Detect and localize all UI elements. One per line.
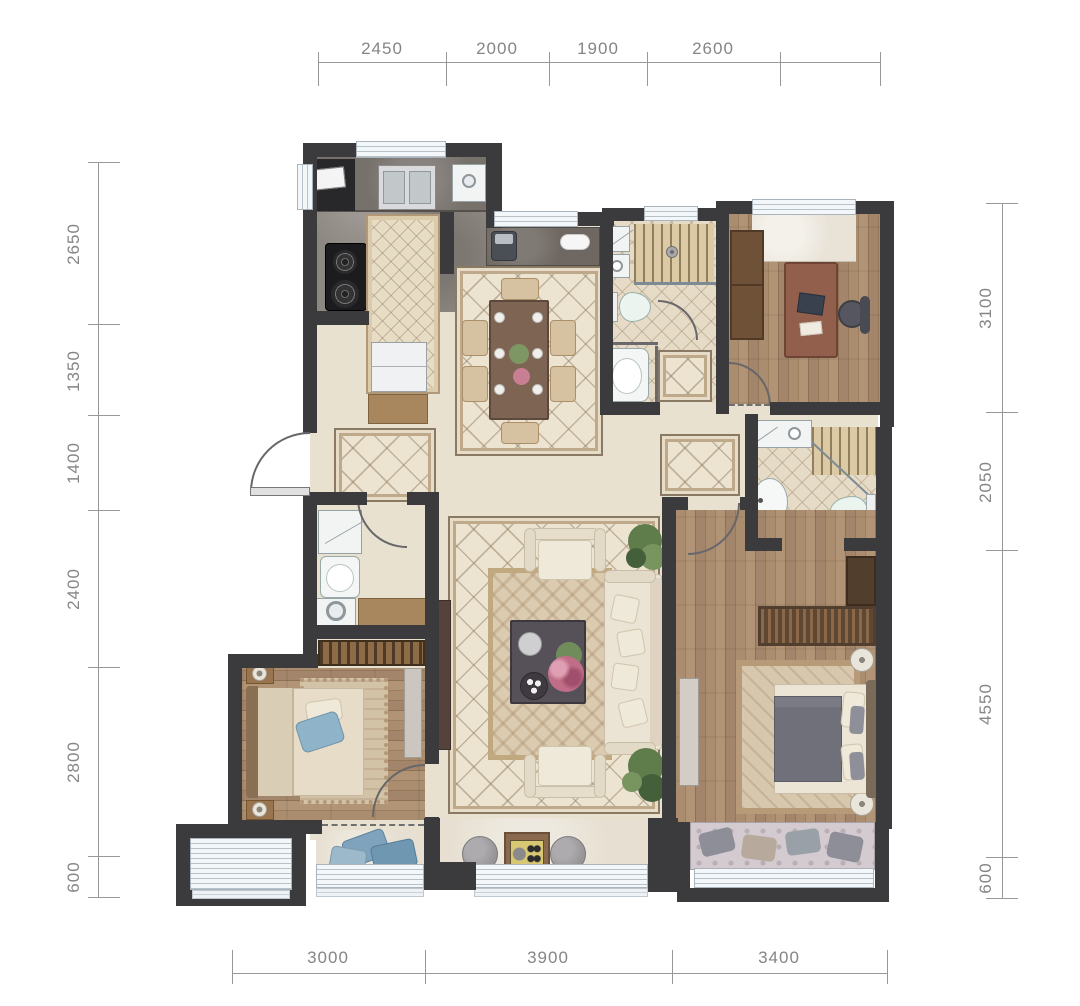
bay-pillow bbox=[740, 834, 777, 862]
dim-label-bottom: 3000 bbox=[298, 948, 358, 968]
ensuite-sink-knob bbox=[788, 427, 801, 440]
dim-tick bbox=[425, 950, 426, 984]
sofa-back bbox=[650, 578, 662, 746]
dim-tick bbox=[446, 52, 447, 86]
dining-chair bbox=[550, 366, 576, 402]
sofa-pillow bbox=[616, 628, 646, 658]
dim-tick bbox=[672, 950, 673, 984]
dimension-line-left bbox=[98, 162, 99, 897]
dim-label-right: 4550 bbox=[976, 674, 996, 734]
sofa-armrest bbox=[604, 570, 656, 583]
plate bbox=[494, 348, 505, 359]
table-plate bbox=[520, 672, 548, 700]
window bbox=[644, 206, 698, 221]
washing-machine-door bbox=[326, 601, 346, 621]
wall-segment bbox=[317, 311, 369, 325]
dim-tick bbox=[88, 856, 120, 857]
potted-plant bbox=[622, 772, 642, 792]
dim-label-right: 600 bbox=[976, 848, 996, 908]
plate bbox=[532, 384, 543, 395]
plate bbox=[494, 384, 505, 395]
dim-label-left: 2800 bbox=[64, 732, 84, 792]
dim-tick bbox=[88, 415, 120, 416]
armchair-arm bbox=[594, 754, 606, 798]
balcony-pillar bbox=[424, 862, 476, 890]
window bbox=[297, 164, 313, 210]
fridge-handle bbox=[371, 366, 427, 367]
entry-door-arc bbox=[250, 432, 310, 492]
wall-segment bbox=[407, 492, 439, 505]
bay-window-frame bbox=[875, 822, 889, 888]
bed-pillow-accent bbox=[849, 752, 865, 781]
wash-basin-bowl bbox=[612, 358, 642, 394]
bay-window bbox=[694, 868, 874, 888]
wall-segment bbox=[880, 201, 894, 427]
ensuite-vanity bbox=[752, 420, 812, 448]
wall-segment bbox=[876, 427, 892, 829]
laundry-cabinet bbox=[318, 510, 362, 554]
dim-tick bbox=[887, 950, 888, 984]
dim-label-top: 2600 bbox=[683, 39, 743, 59]
bathroom-partition bbox=[613, 342, 658, 345]
fridge bbox=[371, 342, 427, 392]
nightstand-lamp bbox=[252, 666, 267, 681]
balcony-sill bbox=[474, 888, 648, 897]
wall-segment bbox=[425, 817, 439, 833]
sofa-pillow bbox=[610, 662, 639, 691]
floor-plan: 2450 2000 1900 2600 2650 1350 1400 2400 … bbox=[0, 0, 1080, 1006]
dim-tick bbox=[549, 52, 550, 86]
entry-tile-panel bbox=[334, 428, 436, 502]
dim-label-bottom: 3900 bbox=[518, 948, 578, 968]
armchair-back bbox=[530, 528, 600, 540]
dining-chair bbox=[550, 320, 576, 356]
coffee-machine-top bbox=[495, 234, 513, 244]
vent-icon bbox=[312, 166, 346, 190]
armchair-arm bbox=[524, 754, 536, 798]
dim-tick bbox=[780, 52, 781, 86]
dim-label-right: 3100 bbox=[976, 278, 996, 338]
armchair-arm bbox=[524, 528, 536, 572]
potted-plant bbox=[626, 548, 646, 568]
wall-segment bbox=[745, 414, 758, 551]
cooktop-burner bbox=[333, 250, 357, 274]
balcony-sill bbox=[316, 888, 424, 897]
window bbox=[752, 199, 856, 215]
laptop bbox=[797, 292, 826, 315]
table-flowers bbox=[548, 656, 584, 692]
dimension-line-top bbox=[318, 62, 880, 63]
dim-tick bbox=[88, 897, 120, 898]
shower-head-icon bbox=[666, 246, 678, 258]
dim-tick bbox=[88, 510, 120, 511]
wall-segment bbox=[745, 538, 782, 551]
window bbox=[356, 141, 446, 158]
serving-tray bbox=[560, 234, 590, 250]
wall-segment bbox=[303, 625, 439, 639]
master-bed-duvet bbox=[774, 696, 842, 782]
armchair-cushion bbox=[538, 746, 592, 786]
kitchen-appliance-knob bbox=[462, 174, 476, 188]
armchair-back bbox=[530, 786, 600, 798]
desk-papers bbox=[799, 321, 822, 336]
bedside-lamp bbox=[850, 648, 874, 672]
plate bbox=[532, 348, 543, 359]
window bbox=[494, 211, 578, 227]
study-bay-sill bbox=[752, 214, 856, 262]
shower-glass bbox=[634, 282, 716, 285]
plate bbox=[494, 312, 505, 323]
laundry-counter bbox=[358, 598, 428, 626]
dim-tick bbox=[232, 950, 233, 984]
bay-window bbox=[190, 838, 292, 890]
table-centerpiece-flowers bbox=[513, 368, 530, 385]
dim-tick bbox=[88, 667, 120, 668]
dim-label-top: 2000 bbox=[467, 39, 527, 59]
dim-tick bbox=[318, 52, 319, 86]
dim-label-left: 1350 bbox=[64, 341, 84, 401]
master-dresser bbox=[758, 606, 876, 646]
kitchen-cabinet bbox=[368, 394, 428, 424]
dim-tick bbox=[88, 324, 120, 325]
dining-chair bbox=[501, 422, 539, 444]
sliding-door bbox=[322, 824, 424, 826]
wall-segment bbox=[228, 654, 242, 834]
dim-tick bbox=[647, 52, 648, 86]
bed-pillow-accent bbox=[849, 706, 865, 735]
laundry-sink-bowl bbox=[326, 564, 354, 592]
dimension-line-bottom bbox=[232, 973, 887, 974]
wall-segment bbox=[600, 402, 660, 415]
wall-segment bbox=[740, 497, 758, 510]
bedroom2-wardrobe bbox=[318, 640, 425, 666]
hallway-tile-panel bbox=[660, 434, 740, 496]
cooktop-burner bbox=[331, 280, 359, 308]
dim-label-top: 1900 bbox=[568, 39, 628, 59]
bay-window-sill bbox=[192, 890, 290, 899]
bay-pillow bbox=[784, 828, 821, 856]
ensuite-basin-faucet bbox=[758, 498, 763, 503]
dim-label-left: 600 bbox=[64, 847, 84, 907]
desk-chair-back bbox=[860, 296, 870, 334]
balcony-window bbox=[316, 864, 424, 888]
dining-chair bbox=[462, 320, 488, 356]
wall-segment bbox=[662, 497, 676, 829]
table-centerpiece-plant bbox=[509, 344, 529, 364]
bathroom-tile-panel bbox=[658, 350, 712, 402]
dim-label-left: 1400 bbox=[64, 433, 84, 493]
bay-window-frame bbox=[677, 888, 889, 902]
kitchen-sink-basin bbox=[383, 171, 405, 204]
dim-tick bbox=[88, 162, 120, 163]
dining-chair bbox=[462, 366, 488, 402]
dim-label-top: 2450 bbox=[352, 39, 412, 59]
bay-window-frame bbox=[677, 822, 690, 888]
nightstand-lamp bbox=[252, 802, 267, 817]
sofa-pillow bbox=[610, 594, 641, 625]
dim-tick bbox=[880, 52, 881, 86]
dim-label-left: 2650 bbox=[64, 214, 84, 274]
wall-segment bbox=[770, 402, 894, 415]
wall-segment bbox=[440, 212, 454, 274]
plate bbox=[532, 312, 543, 323]
balcony-pillar bbox=[648, 818, 678, 892]
dim-label-right: 2050 bbox=[976, 452, 996, 512]
wall-segment bbox=[317, 492, 367, 505]
balcony-window bbox=[474, 864, 648, 888]
dim-tick bbox=[986, 550, 1018, 551]
entry-door-leaf bbox=[250, 487, 310, 496]
study-wardrobe-shelf bbox=[730, 284, 764, 286]
wall-segment bbox=[600, 212, 613, 414]
master-closet bbox=[846, 556, 876, 606]
dim-tick bbox=[986, 412, 1018, 413]
armchair-cushion bbox=[538, 540, 592, 580]
master-tv-cabinet bbox=[679, 678, 699, 786]
dim-label-bottom: 3400 bbox=[749, 948, 809, 968]
dim-label-left: 2400 bbox=[64, 559, 84, 619]
bedroom2-desk bbox=[404, 668, 422, 758]
armchair-arm bbox=[594, 528, 606, 572]
kitchen-sink-basin bbox=[409, 171, 431, 204]
bedroom2-blanket bbox=[258, 688, 294, 796]
bedroom2-headboard bbox=[246, 686, 258, 798]
dim-tick bbox=[986, 203, 1018, 204]
table-tray bbox=[518, 632, 542, 656]
wall-segment bbox=[844, 538, 878, 551]
wall-segment bbox=[228, 820, 322, 834]
wall-segment bbox=[716, 201, 729, 414]
dining-chair bbox=[501, 278, 539, 300]
